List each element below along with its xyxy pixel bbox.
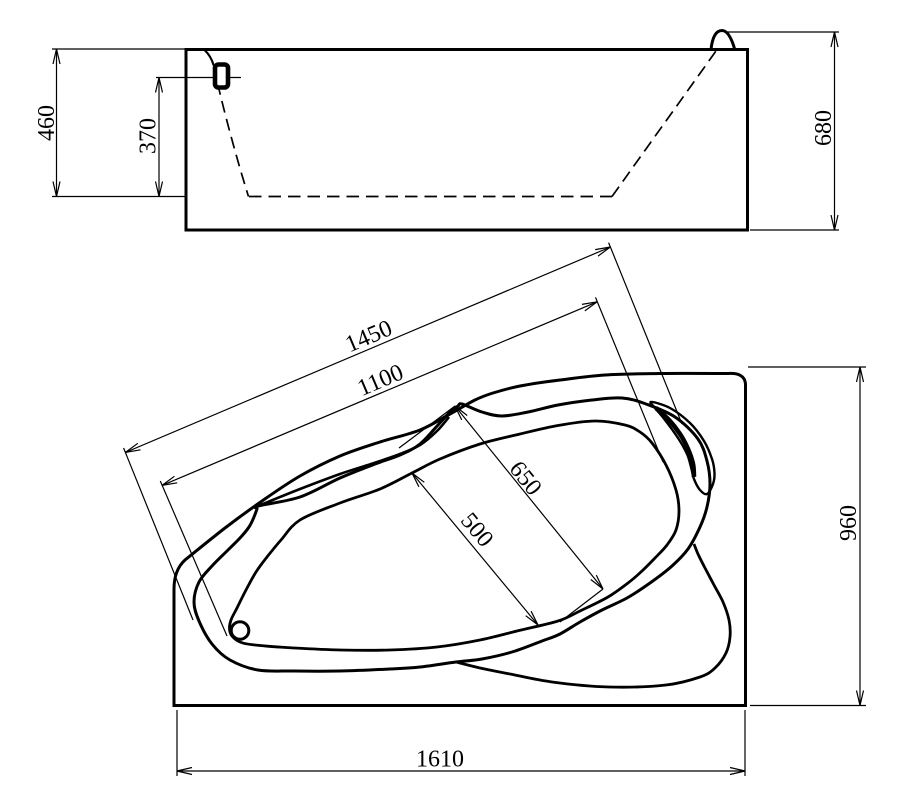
svg-text:1610: 1610: [416, 747, 464, 773]
svg-text:960: 960: [836, 505, 862, 541]
svg-text:370: 370: [136, 118, 162, 154]
svg-text:460: 460: [34, 105, 60, 141]
svg-text:680: 680: [811, 110, 837, 146]
